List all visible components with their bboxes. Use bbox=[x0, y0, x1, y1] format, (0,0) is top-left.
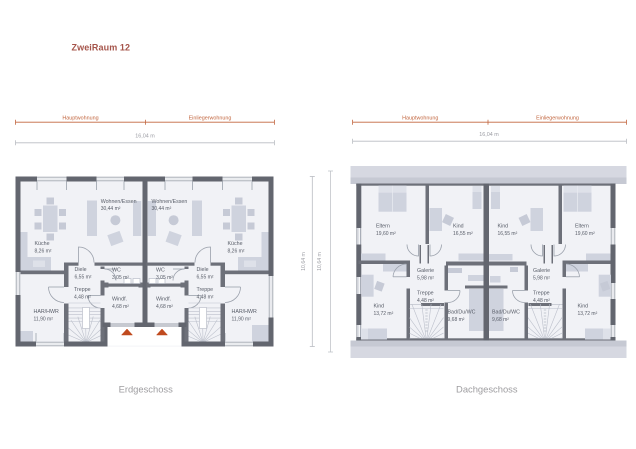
svg-text:WC: WC bbox=[156, 268, 165, 274]
svg-text:11,90 m²: 11,90 m² bbox=[232, 316, 252, 322]
svg-text:Diele: Diele bbox=[75, 267, 87, 273]
svg-text:Diele: Diele bbox=[197, 267, 209, 273]
svg-text:10,64 m: 10,64 m bbox=[317, 252, 323, 271]
svg-text:3,05 m²: 3,05 m² bbox=[156, 275, 173, 281]
svg-text:30,44 m²: 30,44 m² bbox=[101, 206, 121, 212]
svg-text:Bad/Du/WC: Bad/Du/WC bbox=[492, 310, 520, 316]
svg-text:4,68 m²: 4,68 m² bbox=[156, 304, 173, 310]
svg-text:9,68 m²: 9,68 m² bbox=[492, 317, 509, 323]
svg-text:30,44 m²: 30,44 m² bbox=[152, 206, 172, 212]
svg-text:Küche: Küche bbox=[35, 241, 50, 247]
svg-text:Treppe: Treppe bbox=[197, 287, 214, 293]
svg-text:Eltern: Eltern bbox=[376, 224, 390, 230]
svg-text:Hauptwohnung: Hauptwohnung bbox=[402, 116, 438, 122]
svg-text:4,48 m²: 4,48 m² bbox=[533, 298, 550, 304]
svg-text:11,90 m²: 11,90 m² bbox=[34, 316, 54, 322]
svg-text:Wohnen/Essen: Wohnen/Essen bbox=[101, 199, 137, 205]
svg-text:ZweiRaum 12: ZweiRaum 12 bbox=[72, 43, 131, 53]
svg-text:Treppe: Treppe bbox=[74, 287, 91, 293]
svg-text:HAR/HWR: HAR/HWR bbox=[232, 309, 257, 315]
svg-text:Einliegerwohnung: Einliegerwohnung bbox=[189, 116, 232, 122]
svg-text:Eltern: Eltern bbox=[575, 224, 589, 230]
svg-text:4,68 m²: 4,68 m² bbox=[112, 304, 129, 310]
svg-text:16,04 m: 16,04 m bbox=[479, 132, 499, 138]
svg-text:5,98 m²: 5,98 m² bbox=[417, 275, 434, 281]
svg-text:WC: WC bbox=[112, 268, 121, 274]
svg-text:16,04 m: 16,04 m bbox=[135, 134, 155, 140]
svg-text:5,98 m²: 5,98 m² bbox=[533, 275, 550, 281]
svg-text:Wohnen/Essen: Wohnen/Essen bbox=[152, 199, 188, 205]
svg-text:4,48 m²: 4,48 m² bbox=[197, 294, 214, 300]
svg-text:4,48 m²: 4,48 m² bbox=[74, 294, 91, 300]
svg-text:Windf.: Windf. bbox=[112, 297, 127, 303]
svg-text:Galerie: Galerie bbox=[533, 268, 550, 274]
svg-text:Windf.: Windf. bbox=[156, 297, 171, 303]
svg-text:8,26 m²: 8,26 m² bbox=[35, 248, 52, 254]
svg-text:Galerie: Galerie bbox=[417, 268, 434, 274]
svg-text:6,55 m²: 6,55 m² bbox=[197, 274, 214, 280]
svg-text:13,72 m²: 13,72 m² bbox=[374, 311, 394, 317]
svg-text:16,55 m²: 16,55 m² bbox=[453, 231, 473, 237]
svg-text:8,26 m²: 8,26 m² bbox=[228, 248, 245, 254]
svg-text:Einliegerwohnung: Einliegerwohnung bbox=[536, 116, 579, 122]
svg-text:Erdgeschoss: Erdgeschoss bbox=[119, 384, 174, 395]
svg-text:Küche: Küche bbox=[228, 241, 243, 247]
svg-text:HAR/HWR: HAR/HWR bbox=[34, 309, 59, 315]
svg-text:Treppe: Treppe bbox=[417, 291, 434, 297]
svg-text:19,60 m²: 19,60 m² bbox=[575, 231, 595, 237]
svg-text:Kind: Kind bbox=[498, 224, 509, 230]
svg-text:4,48 m²: 4,48 m² bbox=[417, 298, 434, 304]
svg-text:Kind: Kind bbox=[453, 224, 464, 230]
svg-text:Hauptwohnung: Hauptwohnung bbox=[62, 116, 98, 122]
svg-text:19,60 m²: 19,60 m² bbox=[376, 231, 396, 237]
svg-text:Kind: Kind bbox=[578, 304, 589, 310]
svg-text:13,72 m²: 13,72 m² bbox=[578, 311, 598, 317]
svg-text:9,68 m²: 9,68 m² bbox=[448, 317, 465, 323]
svg-text:Kind: Kind bbox=[374, 304, 385, 310]
svg-text:Dachgeschoss: Dachgeschoss bbox=[456, 384, 518, 395]
svg-text:6,55 m²: 6,55 m² bbox=[75, 274, 92, 280]
svg-text:10,64 m: 10,64 m bbox=[301, 252, 307, 271]
svg-text:16,55 m²: 16,55 m² bbox=[498, 231, 518, 237]
svg-text:3,05 m²: 3,05 m² bbox=[112, 275, 129, 281]
svg-text:Bad/Du/WC: Bad/Du/WC bbox=[448, 310, 476, 316]
svg-text:Treppe: Treppe bbox=[533, 291, 550, 297]
